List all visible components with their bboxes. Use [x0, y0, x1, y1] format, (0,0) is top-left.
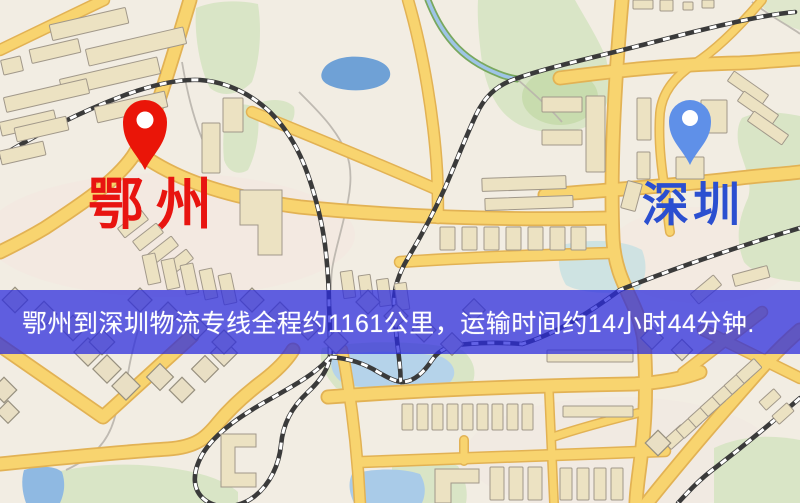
destination-city-label: 深圳	[642, 178, 744, 231]
origin-city-label: 鄂州	[88, 173, 224, 236]
route-info-text: 鄂州到深圳物流专线全程约1161公里，运输时间约14小时44分钟.	[22, 304, 755, 340]
map-canvas: 鄂州 深圳	[0, 0, 800, 503]
route-info-banner: 鄂州到深圳物流专线全程约1161公里，运输时间约14小时44分钟.	[0, 290, 800, 354]
map-screenshot: 鄂州 深圳 鄂州到深圳物流专线全程约1161公里，运输时间约14小时44分钟.	[0, 0, 800, 503]
